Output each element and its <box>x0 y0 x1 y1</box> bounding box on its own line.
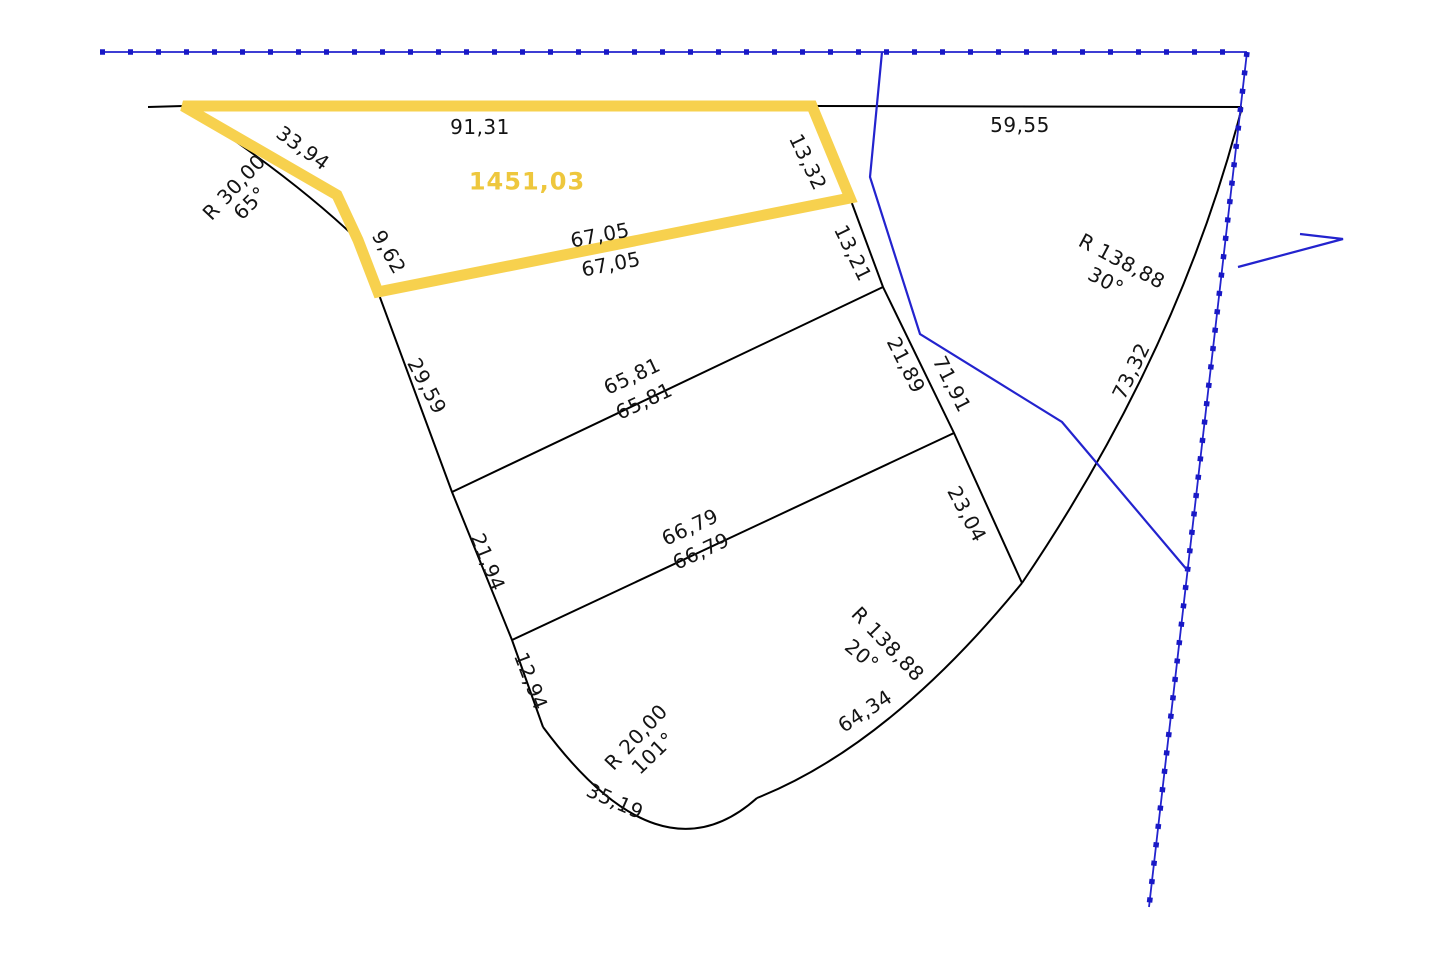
dim-71-91: 71,91 <box>928 352 977 416</box>
dim-73-32: 73,32 <box>1107 339 1155 403</box>
boundary-arc-bottom <box>757 583 1022 798</box>
boundary-stub-left <box>148 106 183 107</box>
boundary-right <box>850 198 1022 583</box>
dim-23-04: 23,04 <box>942 482 991 546</box>
dim-35-19: 35,19 <box>583 778 647 824</box>
flow-arrow-icon <box>1238 234 1343 267</box>
parcel-boundaries <box>148 106 1242 829</box>
parcel-area-label: 1451,03 <box>469 167 585 195</box>
dim-12-94: 12,94 <box>509 649 553 713</box>
utility-overlay <box>100 52 1343 907</box>
dim-59-55: 59,55 <box>990 113 1050 137</box>
cad-viewport[interactable]: 91,31 59,55 33,94 R 30,00 65° 9,62 67,05… <box>0 0 1440 960</box>
dim-21-94: 21,94 <box>466 530 511 594</box>
dim-64-34: 64,34 <box>833 685 896 738</box>
cad-drawing-page: 91,31 59,55 33,94 R 30,00 65° 9,62 67,05… <box>0 0 1440 960</box>
divider-66-79 <box>512 433 954 640</box>
dim-29-59: 29,59 <box>402 354 451 418</box>
dim-21-89: 21,89 <box>882 333 931 397</box>
dim-91-31: 91,31 <box>450 115 510 139</box>
